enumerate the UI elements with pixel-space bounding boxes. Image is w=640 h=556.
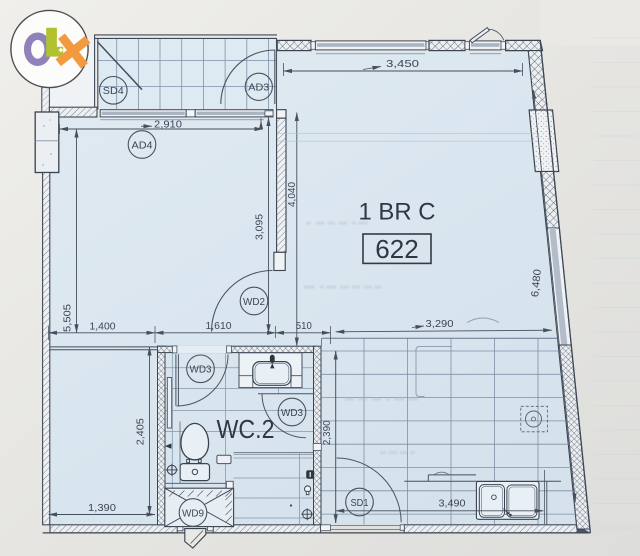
svg-text:1,400: 1,400	[90, 321, 116, 333]
svg-text:510: 510	[296, 320, 312, 332]
svg-text:2,910: 2,910	[154, 118, 182, 130]
svg-text:WC.2: WC.2	[217, 416, 275, 444]
svg-text:3,290: 3,290	[426, 318, 454, 330]
svg-text:WD3: WD3	[190, 364, 212, 376]
svg-text:3,450: 3,450	[386, 58, 419, 70]
svg-text:SD4: SD4	[103, 85, 124, 97]
svg-text:3,095: 3,095	[254, 214, 266, 240]
svg-text:4,040: 4,040	[286, 182, 298, 207]
svg-text:WD3: WD3	[281, 407, 303, 419]
svg-text:2,390: 2,390	[321, 420, 333, 445]
svg-text:WD2: WD2	[243, 296, 265, 308]
svg-text:3,490: 3,490	[439, 498, 466, 510]
svg-text:AD4: AD4	[132, 139, 153, 151]
svg-text:AD3: AD3	[248, 82, 269, 94]
svg-text:1 BR C: 1 BR C	[359, 199, 436, 226]
svg-text:1,610: 1,610	[206, 320, 232, 332]
svg-text:622: 622	[375, 234, 418, 264]
svg-text:1,390: 1,390	[88, 502, 116, 514]
svg-text:5,505: 5,505	[62, 304, 74, 332]
svg-text:WD9: WD9	[182, 507, 204, 519]
svg-text:SD1: SD1	[351, 497, 369, 509]
svg-text:2,405: 2,405	[135, 418, 147, 445]
